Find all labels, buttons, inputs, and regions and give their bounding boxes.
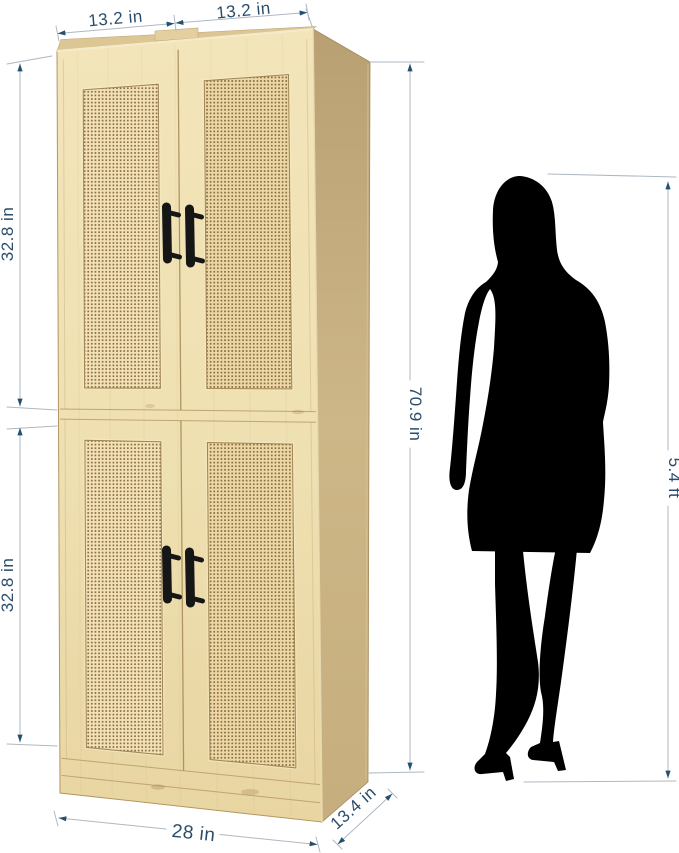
product-dimension-image: 13.2 in 13.2 in 32.8 in 32.8 in 70.9 in …	[0, 0, 679, 853]
silhouette-body	[467, 176, 609, 553]
label-bottom-width: 28 in	[171, 821, 217, 846]
dim-line-bottom-width-right	[220, 835, 317, 845]
rattan-mesh	[204, 75, 291, 389]
label-person-height: 5.4 ft	[665, 458, 679, 499]
wood-knot	[145, 404, 155, 408]
label-upper-section-height: 32.8 in	[0, 207, 17, 262]
dim-line-bottom-width-left	[59, 818, 166, 829]
cabinet-dimension-diagram: 13.2 in 13.2 in 32.8 in 32.8 in 70.9 in …	[0, 0, 679, 853]
rattan-mesh	[83, 84, 160, 388]
wood-knot	[292, 410, 304, 414]
cabinet-illustration	[57, 27, 370, 823]
cabinet-side-panel	[313, 29, 370, 822]
label-top-width-right: 13.2 in	[215, 0, 271, 23]
rattan-mesh	[85, 440, 163, 755]
silhouette-front-leg	[475, 550, 539, 781]
label-total-height: 70.9 in	[406, 387, 425, 442]
wood-knot	[241, 789, 259, 795]
label-lower-section-height: 32.8 in	[0, 558, 17, 613]
wood-knot	[151, 784, 165, 789]
rattan-mesh	[207, 443, 296, 768]
woman-silhouette	[449, 176, 609, 781]
